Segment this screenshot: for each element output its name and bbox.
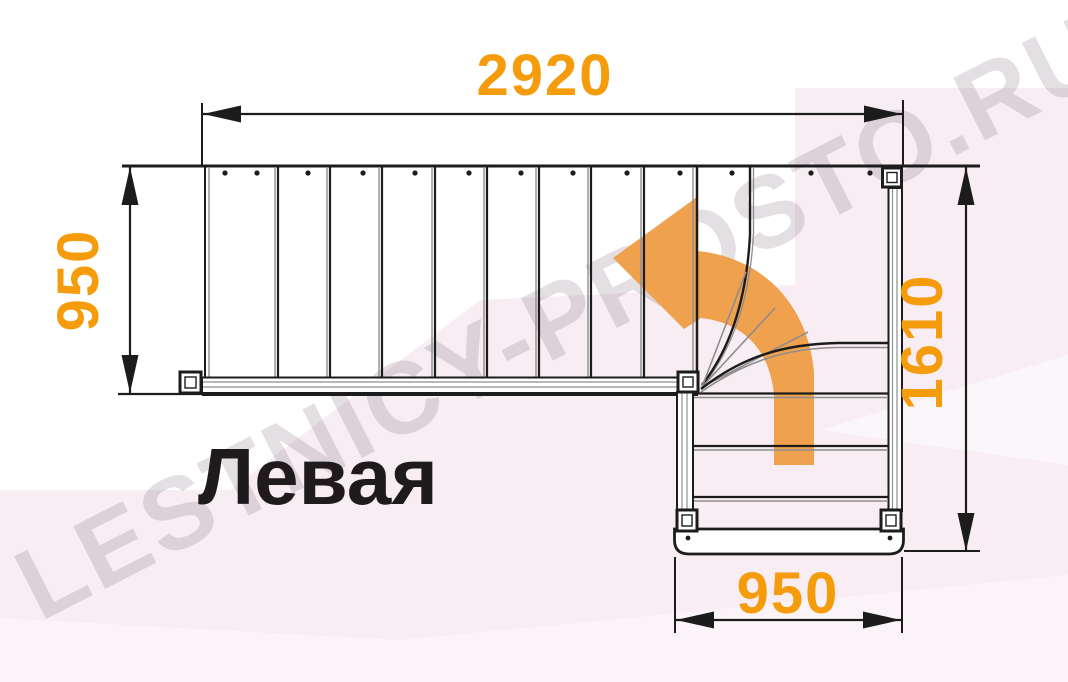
newel-post-top-left xyxy=(180,372,201,393)
newel-post-bottom-left xyxy=(677,510,697,531)
dimension-left-depth: 950 xyxy=(46,167,224,394)
entry-step xyxy=(675,529,904,554)
staircase-plan-page: LESTNICY-PROSTO.RU xyxy=(0,0,1068,682)
stair-name-label: Левая xyxy=(198,432,438,521)
dimension-top-width-label: 2920 xyxy=(476,43,613,108)
newel-post-bottom-right xyxy=(881,510,901,531)
top-flight-stringer xyxy=(202,378,698,395)
dimension-right-height-label: 1610 xyxy=(890,273,955,410)
dimension-left-depth-label: 950 xyxy=(46,229,111,332)
staircase-plan-drawing: LESTNICY-PROSTO.RU xyxy=(0,0,1068,682)
dimension-bottom-width-label: 950 xyxy=(737,561,840,626)
newel-post-top-right xyxy=(883,168,902,187)
newel-post-center xyxy=(678,372,698,392)
